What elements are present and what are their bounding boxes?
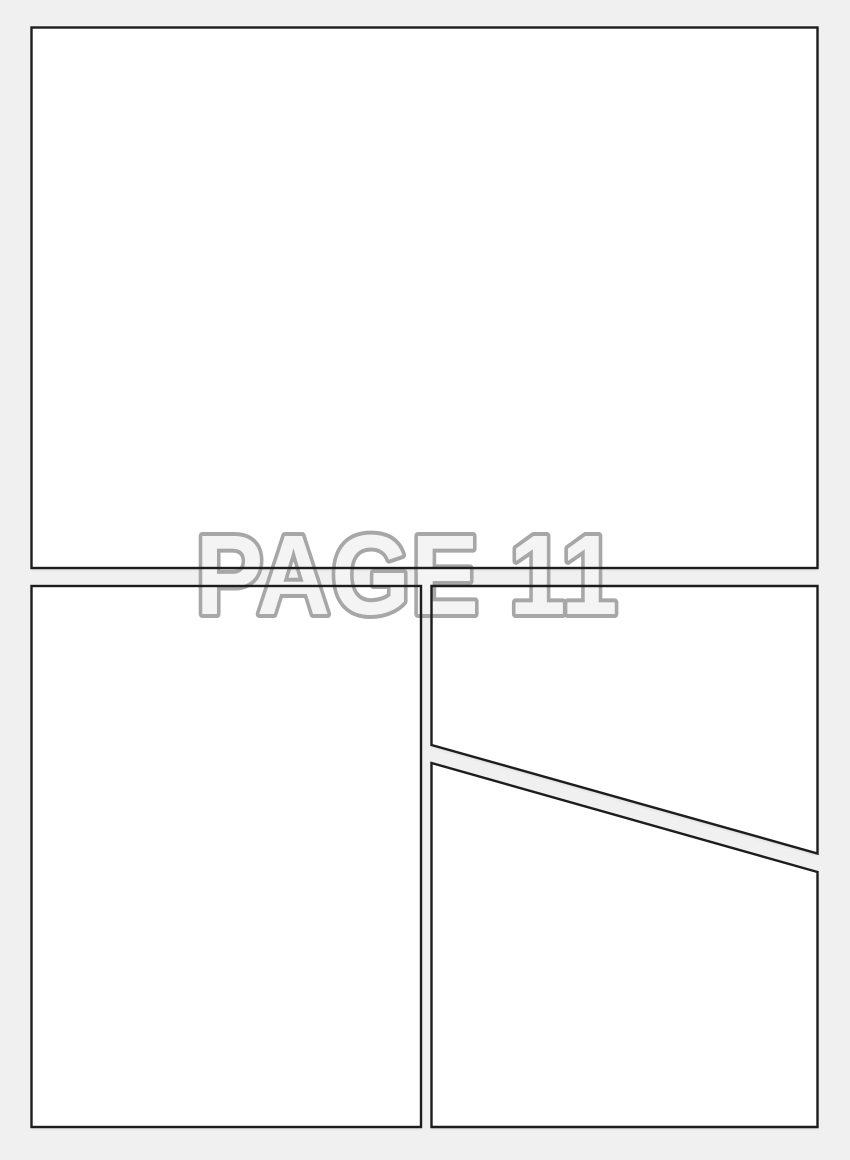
page-number-watermark: PAGE 11 <box>196 512 619 638</box>
panel-bottom-left-fill <box>32 586 422 1127</box>
panel-top-fill <box>32 28 818 569</box>
comic-page-canvas: PAGE 11 <box>0 0 850 1160</box>
comic-page-sheet: PAGE 11 <box>0 0 850 1160</box>
